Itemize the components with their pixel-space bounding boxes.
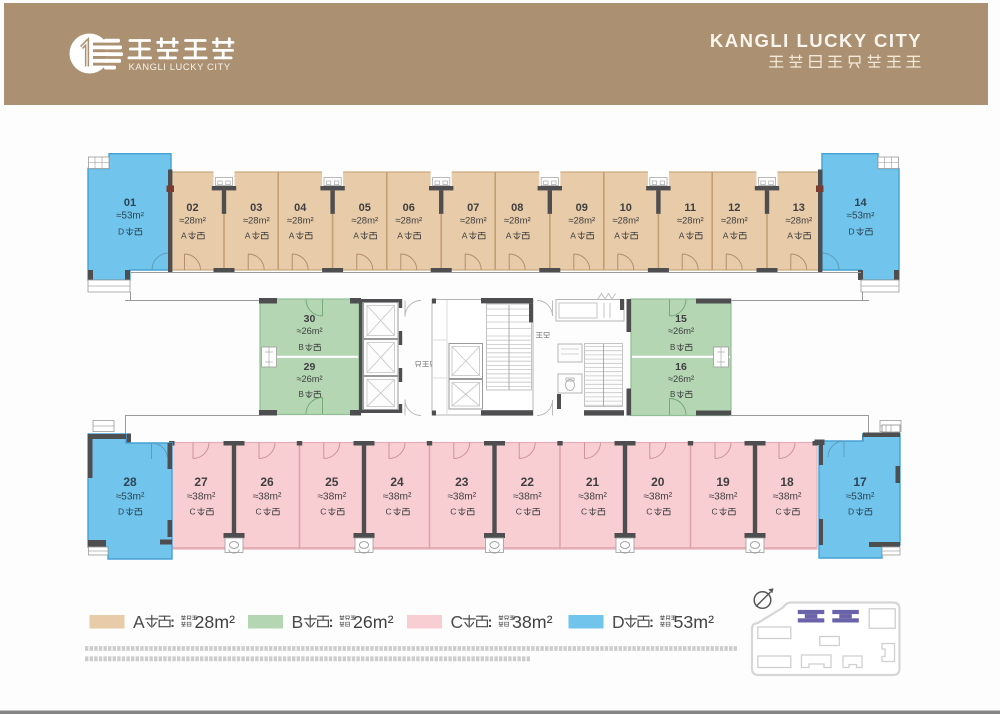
svg-text:≈38m²: ≈38m²: [773, 492, 802, 503]
svg-text:23: 23: [455, 475, 469, 489]
svg-text:05: 05: [359, 202, 371, 214]
svg-text:≈28m²: ≈28m²: [243, 216, 270, 227]
svg-text:13: 13: [793, 202, 805, 214]
svg-text:A: A: [506, 231, 512, 241]
svg-text:24: 24: [390, 475, 404, 489]
svg-text:C: C: [450, 507, 456, 517]
svg-text:≈38m²: ≈38m²: [253, 492, 282, 503]
svg-text:KANGLI LUCKY CITY: KANGLI LUCKY CITY: [129, 61, 231, 72]
svg-text:B: B: [670, 343, 675, 352]
svg-text:D: D: [118, 227, 124, 237]
svg-text:≈28m²: ≈28m²: [287, 216, 314, 227]
svg-text:A: A: [397, 231, 403, 241]
svg-text:C: C: [320, 507, 326, 517]
svg-text:30: 30: [304, 313, 316, 325]
svg-text:10: 10: [620, 202, 632, 214]
svg-text:09: 09: [576, 202, 588, 214]
svg-text:14: 14: [854, 197, 867, 209]
svg-text:B: B: [292, 612, 304, 632]
svg-text:29: 29: [304, 361, 316, 373]
svg-text:28m²: 28m²: [195, 612, 236, 632]
svg-text:26: 26: [260, 475, 274, 489]
svg-text::: :: [170, 614, 175, 631]
svg-text::: :: [488, 614, 493, 631]
svg-text:A: A: [723, 231, 729, 241]
svg-text:A: A: [614, 231, 620, 241]
svg-text:C: C: [646, 507, 652, 517]
svg-text:≈26m²: ≈26m²: [668, 374, 694, 384]
svg-text:22: 22: [521, 475, 535, 489]
svg-text:C: C: [516, 507, 522, 517]
svg-text:26m²: 26m²: [353, 612, 394, 632]
svg-text:27: 27: [194, 475, 208, 489]
svg-text:≈28m²: ≈28m²: [612, 216, 639, 227]
svg-text:17: 17: [853, 475, 867, 489]
svg-text:19: 19: [716, 475, 730, 489]
svg-text:15: 15: [675, 313, 687, 325]
svg-text:≈38m²: ≈38m²: [513, 492, 542, 503]
svg-text:A: A: [245, 231, 251, 241]
svg-text:C: C: [386, 507, 392, 517]
svg-text:18: 18: [780, 475, 794, 489]
svg-text:28: 28: [123, 475, 137, 489]
svg-text:≈38m²: ≈38m²: [317, 492, 346, 503]
svg-text:A: A: [462, 231, 468, 241]
svg-text:≈38m²: ≈38m²: [578, 492, 607, 503]
svg-text:D: D: [848, 507, 854, 517]
svg-text:02: 02: [186, 202, 198, 214]
svg-text:20: 20: [651, 475, 665, 489]
svg-text:≈53m²: ≈53m²: [846, 492, 875, 503]
svg-text:08: 08: [511, 202, 523, 214]
svg-text:≈28m²: ≈28m²: [179, 216, 206, 227]
svg-text:≈28m²: ≈28m²: [504, 216, 531, 227]
svg-text:A: A: [289, 231, 295, 241]
svg-text:A: A: [679, 231, 685, 241]
svg-text:01: 01: [124, 197, 136, 209]
svg-text:≈26m²: ≈26m²: [296, 326, 322, 336]
svg-text:≈28m²: ≈28m²: [395, 216, 422, 227]
svg-text:≈38m²: ≈38m²: [709, 492, 738, 503]
svg-text:KANGLI LUCKY CITY: KANGLI LUCKY CITY: [710, 30, 922, 51]
svg-text:03: 03: [250, 202, 262, 214]
svg-text:≈38m²: ≈38m²: [187, 492, 216, 503]
svg-text:≈26m²: ≈26m²: [296, 374, 322, 384]
svg-text:C: C: [451, 612, 464, 632]
svg-text:D: D: [118, 507, 124, 517]
svg-text:C: C: [712, 507, 718, 517]
svg-text:21: 21: [586, 475, 600, 489]
svg-text:A: A: [353, 231, 359, 241]
svg-text:≈28m²: ≈28m²: [460, 216, 487, 227]
svg-text:12: 12: [728, 202, 740, 214]
svg-text:≈53m²: ≈53m²: [116, 492, 145, 503]
svg-text:A: A: [181, 231, 187, 241]
svg-text:A: A: [133, 612, 145, 632]
svg-text:A: A: [570, 231, 576, 241]
svg-text:≈38m²: ≈38m²: [383, 492, 412, 503]
svg-text:04: 04: [294, 202, 307, 214]
svg-text:B: B: [299, 343, 304, 352]
svg-text:07: 07: [467, 202, 479, 214]
svg-text:16: 16: [675, 361, 687, 373]
svg-text:06: 06: [403, 202, 415, 214]
svg-text:≈28m²: ≈28m²: [677, 216, 704, 227]
svg-text:C: C: [776, 507, 782, 517]
svg-text:≈28m²: ≈28m²: [351, 216, 378, 227]
svg-text::: :: [329, 614, 334, 631]
svg-text:≈28m²: ≈28m²: [785, 216, 812, 227]
svg-text:≈53m²: ≈53m²: [847, 211, 875, 222]
svg-text:11: 11: [684, 202, 696, 214]
svg-text:25: 25: [325, 475, 339, 489]
svg-text:≈26m²: ≈26m²: [668, 326, 694, 336]
svg-text:A: A: [787, 231, 793, 241]
svg-text:D: D: [612, 612, 625, 632]
svg-text:≈38m²: ≈38m²: [643, 492, 672, 503]
svg-text:B: B: [299, 390, 304, 399]
svg-text:B: B: [670, 390, 675, 399]
svg-text:C: C: [256, 507, 262, 517]
svg-text:≈28m²: ≈28m²: [721, 216, 748, 227]
svg-text:C: C: [581, 507, 587, 517]
svg-text:53m²: 53m²: [674, 612, 715, 632]
svg-text::: :: [649, 614, 654, 631]
svg-text:38m²: 38m²: [512, 612, 553, 632]
svg-text:≈28m²: ≈28m²: [568, 216, 595, 227]
svg-text:≈38m²: ≈38m²: [447, 492, 476, 503]
svg-text:≈53m²: ≈53m²: [116, 211, 144, 222]
svg-text:D: D: [849, 227, 855, 237]
svg-text:C: C: [190, 507, 196, 517]
